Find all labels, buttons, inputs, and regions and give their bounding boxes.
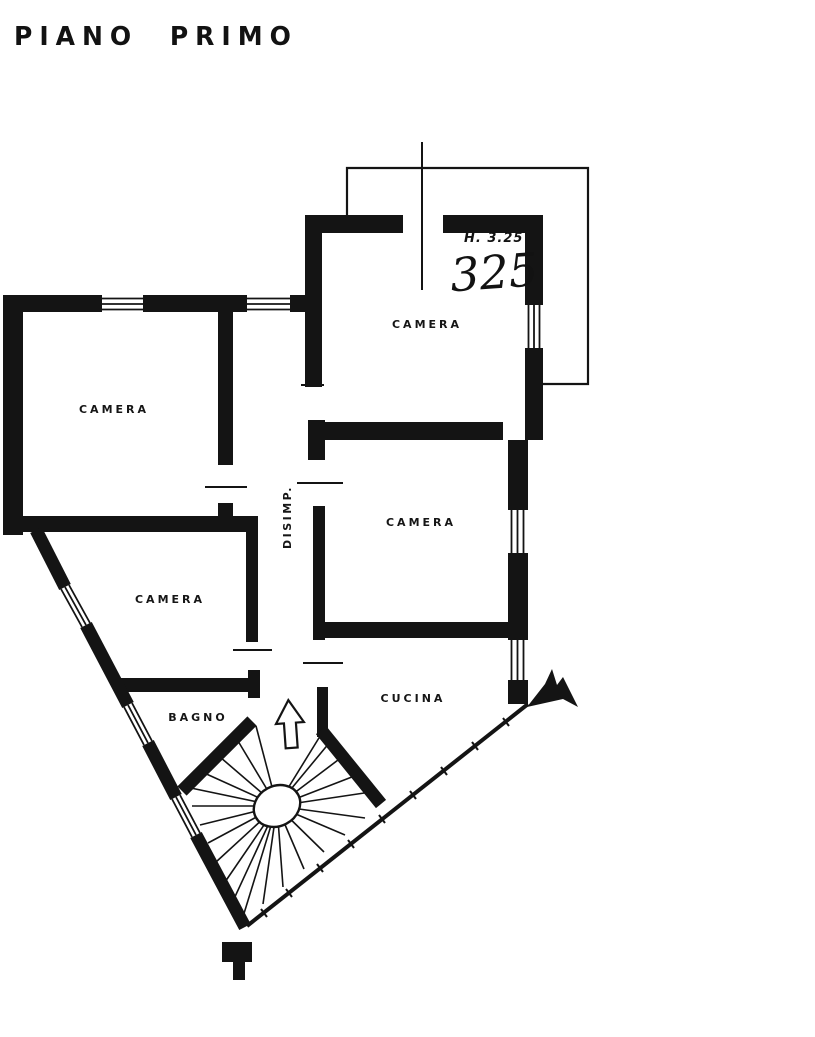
drawing-sheet: PIANO PRIMO [0, 0, 815, 1037]
spiral-staircase [186, 699, 371, 920]
room-label-bagno: BAGNO [168, 711, 227, 724]
room-label-camera-top: CAMERA [392, 318, 462, 331]
ceiling-height-handwritten: 325 [448, 242, 539, 302]
diagonal-walls [36, 530, 381, 927]
room-label-camera-left: CAMERA [79, 403, 149, 416]
room-label-camera-lower-left: CAMERA [135, 593, 205, 606]
stair-direction-arrow-icon [274, 699, 305, 749]
wall-break-mark [527, 669, 578, 707]
room-label-camera-right: CAMERA [386, 516, 456, 529]
room-label-cucina: CUCINA [381, 692, 446, 705]
floor-plan-drawing: CAMERA CAMERA CAMERA CAMERA CUCINA BAGNO… [0, 0, 815, 1037]
room-label-disimpegno: DISIMP. [281, 485, 294, 549]
